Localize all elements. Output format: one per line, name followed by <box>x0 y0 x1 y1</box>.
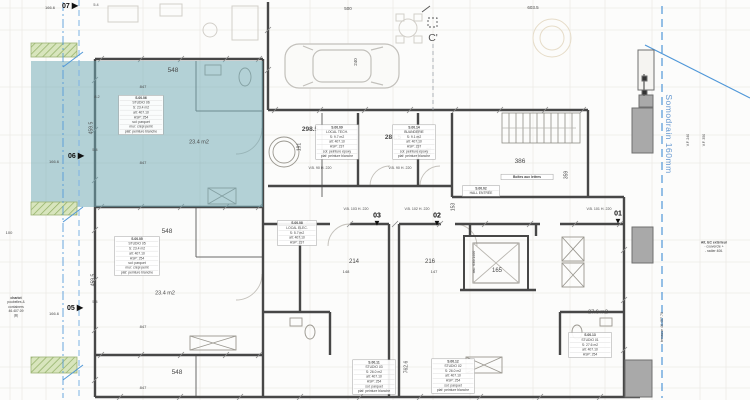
floor-plan-drawing <box>0 0 750 400</box>
slab-rects <box>625 50 654 397</box>
door-arcs <box>236 128 477 300</box>
stairs <box>502 113 580 143</box>
section-line <box>422 6 437 110</box>
elevator-icon <box>464 236 528 290</box>
drain-line-diagonal <box>645 45 750 98</box>
floor-plan-canvas: C' Somodrain 160mm 54854854823.4 m223.4 … <box>0 0 750 400</box>
highlight-overlay <box>31 61 263 207</box>
car-icon <box>285 44 399 88</box>
